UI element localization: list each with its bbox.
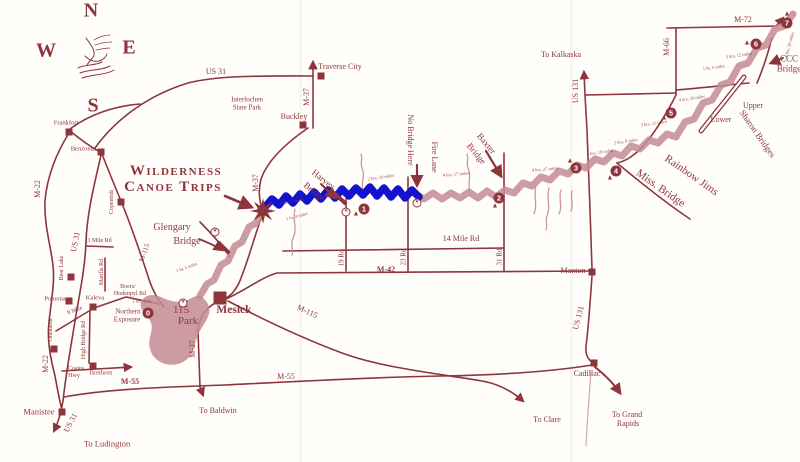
town-square-bear-lake [68, 274, 75, 281]
campsite-icon: ▲ [744, 40, 751, 47]
town-label-benzonia: Benzonia [71, 147, 96, 154]
access-site-icon: ✶ [211, 228, 220, 237]
road-label-23-rd: 23 Rd [400, 249, 407, 266]
duck-illustration [78, 35, 114, 78]
bridge-label-ccc-line2: Bridge [777, 64, 800, 73]
town-square-manistee [59, 409, 66, 416]
road-label-us31-top: US 31 [206, 68, 226, 76]
town-square-buckley [300, 122, 307, 129]
road-high-bridge [89, 311, 90, 363]
compass-south: S [87, 96, 98, 117]
compass-north: N [84, 1, 98, 22]
road-label-m37-north: M-37 [303, 88, 311, 106]
town-label-onekama: Onekama [48, 319, 54, 342]
road-label-19-rd: 19 Rd [338, 250, 345, 267]
road-label-marilla: Marilla Rd [99, 259, 105, 285]
bridge-label-glengary-line2: Bridge [173, 237, 200, 248]
road-label-high-bridge: High Bridge Rd [81, 321, 87, 359]
campsite-icon: ▲ [567, 158, 574, 165]
road-14-mile [283, 248, 504, 251]
town-label-pomona: Pomona [44, 297, 65, 304]
town-label-traverse-city: Traverse City [318, 63, 361, 71]
creek [546, 188, 549, 230]
road-m115-south-clare [228, 301, 523, 401]
compass-east: E [122, 38, 135, 59]
road-label-31-rd: 31 Rd [496, 249, 503, 266]
bridge-label-upper: Upper [743, 102, 763, 110]
town-square-onekama [51, 346, 58, 353]
bridge-label-glengary-line1: Glengary [153, 223, 190, 234]
road-label-coates-line1: Coates [68, 366, 84, 372]
creek [534, 186, 536, 214]
map-line-art [0, 0, 800, 462]
map-title-line1: Wilderness [130, 164, 222, 180]
road-us131-south [586, 372, 591, 446]
canoe-trip-map: N W E S Wilderness Canoe Trips US 31 M-3… [0, 0, 800, 462]
road-label-boers-line2: Hodenpyl Rd [114, 291, 146, 297]
town-label-copemish: Copemish [109, 190, 115, 214]
waypoint-0-marker: 0 [143, 308, 154, 319]
town-label-cadillac: Cadillac [574, 370, 601, 378]
destination-ludington: To Ludington [84, 440, 130, 449]
road-kalkaska-junction [586, 93, 676, 95]
town-square-manton [589, 269, 596, 276]
road-frankfort-up [70, 104, 140, 129]
town-square-mesick [214, 292, 227, 305]
compass-west: W [36, 41, 56, 62]
road-label-m22-south: M-22 [42, 355, 50, 373]
road-label-m22-north: M-22 [34, 180, 42, 198]
campsite-icon: ▲ [607, 175, 614, 182]
town-square-frankfort [66, 129, 73, 136]
park-label-interlochen-line2: State Park [233, 104, 262, 111]
town-label-buckley: Buckley [281, 113, 308, 121]
campsite-icon: ▲ [784, 11, 791, 18]
town-label-kaleva: Kaleva [86, 296, 104, 303]
waypoint-7-marker: 7 [782, 18, 793, 29]
paper-fold [570, 0, 573, 462]
road-label-m55-west: M-55 [121, 378, 139, 386]
road-m42 [226, 271, 592, 299]
paper-fold [299, 0, 302, 462]
road-label-coates-line2: Hwy [68, 373, 80, 379]
road-label-14-mile: 14 Mile Rd [443, 235, 479, 243]
bridge-label-lower: Lower [711, 116, 732, 124]
destination-clare: To Clare [533, 416, 561, 424]
road-label-us131-north: US 131 [572, 79, 580, 103]
town-square-copemish [118, 199, 125, 206]
town-label-mesick: Mesick [216, 304, 251, 316]
road-us131-manton-cadillac [586, 276, 593, 363]
road-label-m37-south: M-37 [189, 340, 197, 358]
road-label-m72: M-72 [734, 16, 752, 24]
town-square-kaleva [90, 304, 97, 311]
creek [361, 154, 363, 192]
campsite-icon: ▲ [492, 203, 499, 210]
town-square-brethren [90, 363, 97, 370]
road-label-13-mile: 13 Mile Rd [84, 238, 111, 244]
road-us31-west-ludington [54, 155, 101, 431]
road-label-m37-mid: M-37 [252, 174, 260, 192]
river-manistee-upper [419, 14, 793, 199]
road-label-boers-line1: Boers/ [120, 284, 136, 290]
label-fire-lane: Fire Lane [430, 142, 438, 173]
time-label-northern: 2 hrs, 8 mi [132, 300, 151, 305]
waypoint-6-marker: 6 [751, 39, 762, 50]
road-label-m42: M-42 [377, 266, 395, 274]
base-star-marker [250, 198, 276, 224]
town-square-cadillac [591, 360, 598, 367]
creek [559, 190, 561, 214]
glengary-bridge-tick [219, 243, 228, 252]
road-label-m66: M-66 [663, 38, 671, 56]
town-label-manistee: Manistee [23, 408, 54, 417]
town-label-bear-lake: Bear Lake [59, 256, 65, 281]
road-13-mile [86, 246, 113, 247]
town-square-benzonia [98, 149, 105, 156]
destination-grand-rapids-line2: Rapids [617, 420, 639, 428]
destination-kalkaska: To Kalkaska [541, 51, 581, 59]
access-site-icon: ✶ [413, 199, 422, 208]
arrow-title-to-base [225, 196, 251, 207]
road-m72 [667, 26, 777, 28]
town-label-manton: Manton [561, 267, 586, 275]
town-label-brethren: Brethren [90, 371, 113, 378]
poi-label-115-park-line2: Park [178, 316, 198, 328]
road-label-m55-mid: M-55 [277, 373, 295, 381]
map-title-line2: Canoe Trips [124, 180, 222, 196]
town-square-pomona [66, 298, 73, 305]
campsite-icon: ▲ [353, 211, 360, 218]
town-label-frankfort: Frankfort [54, 121, 79, 128]
access-site-icon: ✶ [342, 208, 351, 217]
waypoint-1-marker: 1 [359, 204, 370, 215]
destination-baldwin: To Baldwin [199, 407, 236, 415]
poi-label-northern-exposure-line2: Exposure [114, 316, 140, 323]
access-site-icon: ✶ [179, 299, 188, 308]
label-no-bridge-here: No Bridge Here [406, 114, 414, 165]
town-square-traverse-city [318, 73, 325, 80]
